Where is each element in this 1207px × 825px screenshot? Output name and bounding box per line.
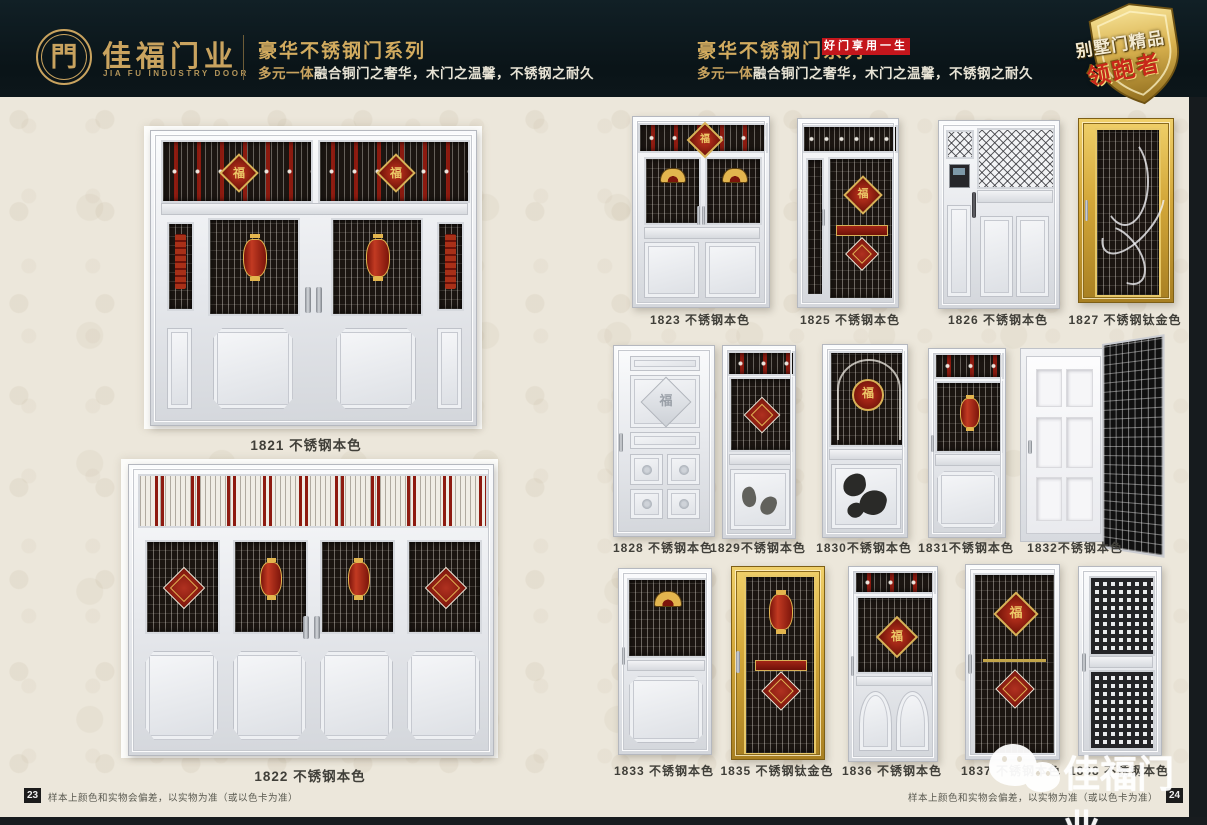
left-page-number: 23 (24, 788, 41, 803)
door-detail: 福 (638, 123, 767, 154)
door-detail (445, 234, 455, 289)
door-detail (739, 485, 758, 508)
door-detail (629, 676, 703, 743)
door-detail (851, 656, 855, 675)
door-detail (996, 669, 1036, 709)
door-detail (644, 227, 760, 239)
door-detail (935, 454, 1001, 465)
door-detail (697, 206, 700, 225)
door-detail (316, 287, 322, 313)
door-detail: 福 (161, 140, 313, 203)
door-detail (859, 691, 893, 751)
door-1826-image (938, 120, 1060, 309)
door-1828-image: 福 (613, 345, 715, 537)
door-detail (213, 328, 293, 409)
door-detail (667, 489, 700, 520)
door-detail (1095, 128, 1161, 297)
right-tagline: 多元一体融合铜门之奢华，木门之温馨，不锈钢之耐久 (697, 62, 1033, 82)
door-detail (1036, 477, 1063, 521)
award-shield-badge: 别墅门精品 领跑者 (1044, 0, 1201, 118)
door-detail (642, 465, 652, 475)
door-detail (407, 651, 480, 740)
door-detail (1085, 200, 1089, 222)
door-1822-image (128, 464, 494, 756)
door-detail (654, 591, 682, 607)
door-detail (729, 454, 791, 466)
door-detail (233, 651, 306, 740)
door-detail: 福 (829, 351, 905, 447)
slogan-badge: 好门享用一生 (822, 38, 910, 55)
door-detail: 福 (843, 175, 883, 215)
door-1823-label: 1823 不锈钢本色 (620, 311, 780, 328)
door-detail: 福 (384, 161, 408, 185)
left-disclaimer: 样本上颜色和实物会偏差，以实物为准（或以色卡为准） (48, 790, 298, 804)
door-detail (320, 540, 395, 634)
door-detail (831, 464, 902, 529)
door-detail (167, 328, 192, 409)
door-detail (167, 222, 194, 311)
door-detail (931, 435, 934, 452)
door-detail: 福 (377, 153, 417, 193)
door-detail (729, 377, 793, 452)
door-1837-image: 福 (965, 564, 1060, 760)
door-detail (730, 469, 790, 531)
door-detail (935, 381, 1003, 453)
watermark-brand-text: 佳福门业 (1063, 744, 1198, 825)
door-detail (822, 209, 825, 226)
door-detail: 福 (641, 377, 692, 428)
door-1832-image (1020, 344, 1166, 544)
door-detail: 福 (994, 591, 1039, 636)
door-detail: 福 (876, 616, 918, 658)
door-detail: 福 (687, 122, 724, 159)
door-1838-image (1078, 566, 1162, 756)
door-detail (937, 471, 1000, 528)
left-series-title: 豪华不锈钢门系列 (258, 36, 426, 63)
door-detail (946, 130, 974, 158)
wechat-icon-small (1025, 762, 1060, 792)
door-detail (736, 651, 740, 672)
door-1822-label: 1822 不锈钢本色 (200, 765, 420, 785)
door-detail (660, 168, 686, 183)
door-detail (761, 672, 801, 712)
header-bar: 門 佳福门业 JIA FU INDUSTRY DOOR 豪华不锈钢门系列 多元一… (0, 0, 1207, 97)
door-detail (644, 157, 701, 226)
door-detail (336, 328, 416, 409)
door-detail (437, 328, 462, 409)
door-detail (366, 239, 390, 277)
door-detail (348, 562, 370, 596)
door-1830-image: 福 (822, 344, 908, 538)
door-detail (642, 499, 652, 509)
door-detail (630, 454, 663, 485)
brand-name-en: JIA FU INDUSTRY DOOR (103, 69, 249, 78)
door-detail: 福 (694, 129, 716, 151)
door-detail (806, 158, 824, 295)
door-detail: 福 (852, 379, 884, 411)
door-detail (233, 540, 308, 634)
door-detail (983, 659, 1045, 663)
door-1835-image (731, 566, 825, 760)
door-detail (138, 474, 488, 529)
header-divider (243, 35, 244, 80)
left-tagline-rest: 融合铜门之奢华，木门之温馨，不锈钢之耐久 (314, 66, 594, 81)
door-detail (854, 571, 935, 594)
door-detail (145, 540, 220, 634)
door-detail (679, 499, 689, 509)
door-detail (1066, 477, 1093, 521)
door-1832-white-leaf (1026, 356, 1101, 534)
door-detail (758, 494, 779, 517)
door-1821-label: 1821 不锈钢本色 (196, 434, 416, 454)
door-1827-image (1078, 118, 1174, 303)
door-detail: 福 (856, 596, 934, 674)
page-edge-right (1189, 97, 1207, 825)
door-detail (407, 540, 482, 634)
door-1827-label: 1827 不锈钢钛金色 (1045, 311, 1205, 328)
door-detail (305, 287, 311, 313)
door-detail (1017, 756, 1022, 762)
door-detail (702, 206, 705, 225)
door-detail (1089, 576, 1155, 655)
door-detail (1036, 771, 1040, 776)
door-detail (980, 216, 1013, 297)
door-1825-image: 福 (797, 118, 899, 308)
door-1825-label: 1825 不锈钢本色 (770, 311, 930, 328)
door-detail: 福 (973, 573, 1055, 755)
door-detail: 福 (630, 375, 700, 428)
door-detail (303, 616, 309, 639)
door-detail (1036, 369, 1063, 406)
door-1823-image: 福 (632, 116, 770, 308)
door-detail (630, 356, 700, 371)
door-detail: 福 (227, 161, 251, 185)
door-detail (627, 578, 706, 658)
door-detail (1028, 440, 1032, 454)
door-detail: 福 (851, 183, 875, 207)
door-detail: 福 (318, 140, 470, 203)
door-detail (802, 125, 898, 153)
door-detail (1016, 216, 1049, 297)
door-detail (960, 398, 980, 428)
door-detail (627, 660, 704, 671)
door-detail: 福 (1002, 600, 1030, 628)
door-detail (705, 242, 760, 297)
door-detail (437, 222, 464, 311)
door-detail (722, 168, 748, 183)
door-detail (425, 567, 467, 609)
door-detail (1066, 417, 1093, 468)
door-detail (161, 203, 469, 215)
door-detail (845, 237, 879, 271)
door-detail (769, 594, 793, 630)
door-detail (630, 489, 663, 520)
door-detail (744, 397, 781, 434)
door-detail (949, 164, 970, 188)
page-edge-bottom (0, 817, 1207, 825)
door-detail (977, 128, 1054, 188)
door-detail: 福 (884, 624, 910, 650)
door-detail (619, 433, 623, 452)
brand-logo-icon: 門 (36, 29, 92, 85)
door-detail (744, 575, 816, 756)
door-detail (145, 651, 218, 740)
door-detail (320, 651, 393, 740)
door-detail (175, 234, 185, 289)
door-detail (968, 654, 972, 673)
door-detail (331, 218, 423, 316)
door-detail (630, 432, 700, 449)
door-detail: 福 (854, 381, 882, 405)
left-tagline: 多元一体融合铜门之奢华，木门之温馨，不锈钢之耐久 (258, 62, 594, 82)
door-detail (947, 205, 971, 297)
door-detail (1036, 417, 1063, 468)
door-detail (856, 676, 932, 687)
door-detail (667, 454, 700, 485)
door-detail: 福 (219, 153, 259, 193)
door-detail (829, 449, 903, 461)
door-detail (314, 616, 320, 639)
door-1832-label: 1832不锈钢本色 (995, 539, 1155, 556)
door-detail: 福 (828, 157, 894, 300)
door-1836-image: 福 (848, 566, 938, 762)
door-1829-image (722, 345, 796, 539)
door-1833-image (618, 568, 712, 755)
door-detail (260, 562, 282, 596)
door-detail (705, 157, 762, 226)
left-tagline-highlight: 多元一体 (258, 66, 314, 81)
door-1831-image (928, 348, 1006, 538)
door-detail (1089, 656, 1153, 667)
right-tagline-highlight: 多元一体 (697, 66, 753, 81)
door-detail (1002, 756, 1007, 762)
door-detail (163, 567, 205, 609)
door-detail (208, 218, 300, 316)
brand-watermark: 佳福门业 (983, 736, 1198, 800)
door-detail (679, 465, 689, 475)
door-detail (977, 190, 1052, 203)
door-detail (755, 660, 807, 671)
door-detail (1046, 771, 1050, 776)
door-detail (972, 192, 976, 218)
door-detail (1066, 369, 1093, 406)
door-detail: 福 (649, 385, 683, 419)
door-detail (953, 168, 965, 175)
door-1821-image: 福 福 (150, 130, 477, 426)
door-1832-grille-leaf (1102, 334, 1165, 558)
door-detail (727, 351, 794, 376)
door-detail (836, 225, 888, 235)
door-detail (1082, 653, 1085, 672)
door-detail (644, 242, 699, 297)
door-detail (934, 353, 1005, 380)
right-tagline-rest: 融合铜门之奢华，木门之温馨，不锈钢之耐久 (753, 66, 1033, 81)
door-detail (243, 239, 267, 277)
door-detail (896, 691, 930, 751)
catalog-spread: 門 佳福门业 JIA FU INDUSTRY DOOR 豪华不锈钢门系列 多元一… (0, 0, 1207, 825)
door-detail (622, 647, 626, 666)
